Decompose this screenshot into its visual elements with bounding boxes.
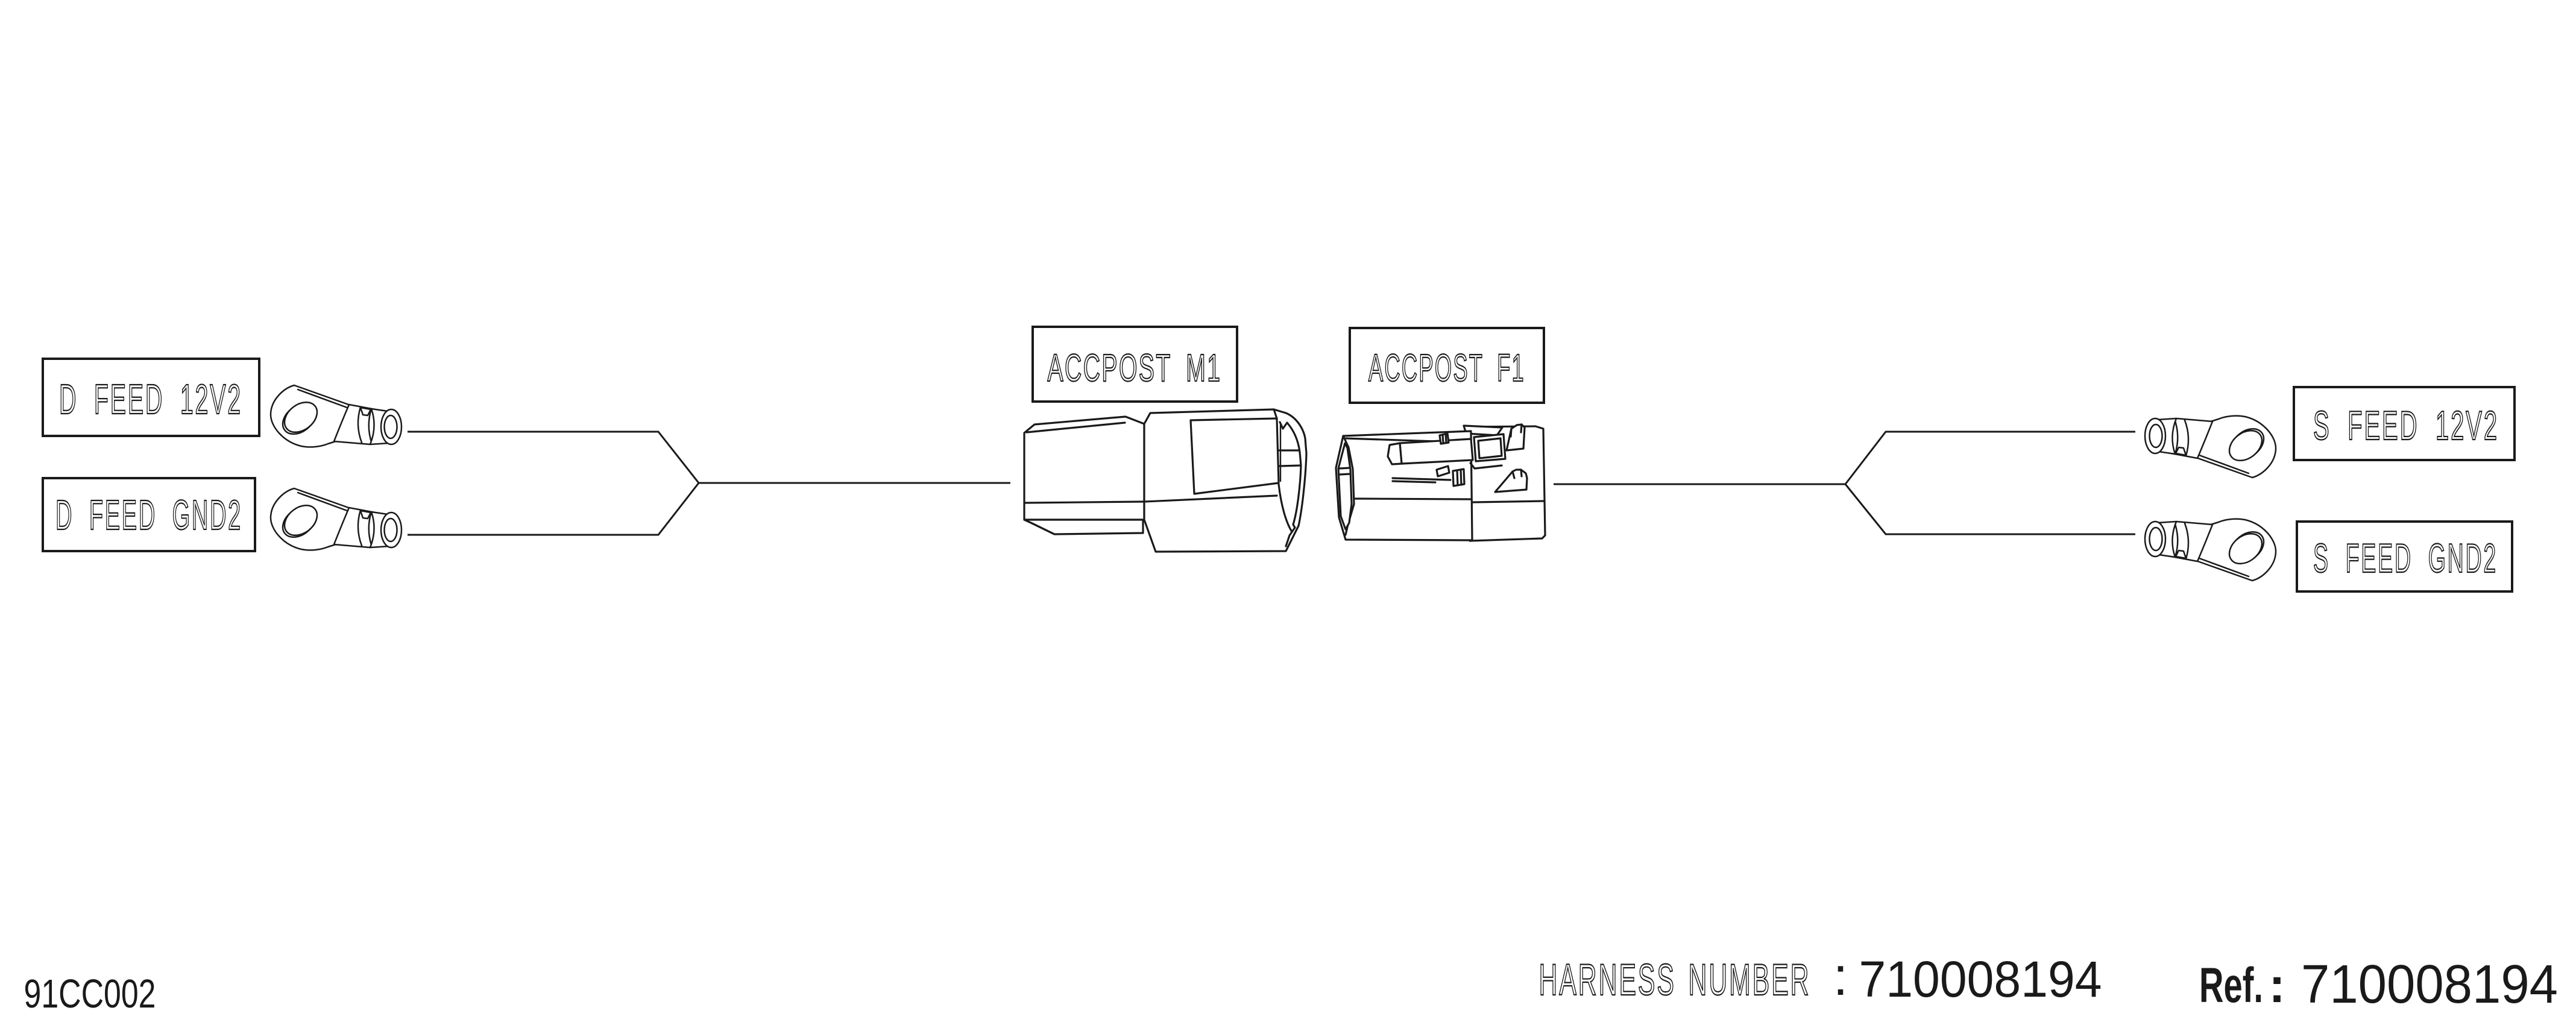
svg-text:S FEED 12V2: S FEED 12V2 <box>2313 403 2499 449</box>
svg-text:ACCPOST F1: ACCPOST F1 <box>1368 346 1525 389</box>
svg-text:S FEED GND2: S FEED GND2 <box>2313 535 2498 581</box>
svg-text::: : <box>2269 958 2285 1013</box>
svg-text:D FEED 12V2: D FEED 12V2 <box>59 376 242 423</box>
svg-text:D FEED GND2: D FEED GND2 <box>55 491 242 538</box>
svg-text::: : <box>1833 947 1848 1007</box>
svg-text:Ref.: Ref. <box>2199 958 2263 1013</box>
svg-text:710008194: 710008194 <box>2301 954 2558 1015</box>
svg-text:ACCPOST M1: ACCPOST M1 <box>1048 346 1222 389</box>
svg-text:91CC002: 91CC002 <box>24 971 156 1017</box>
svg-text:710008194: 710008194 <box>1859 951 2102 1008</box>
svg-text:HARNESS NUMBER: HARNESS NUMBER <box>1539 956 1811 1004</box>
